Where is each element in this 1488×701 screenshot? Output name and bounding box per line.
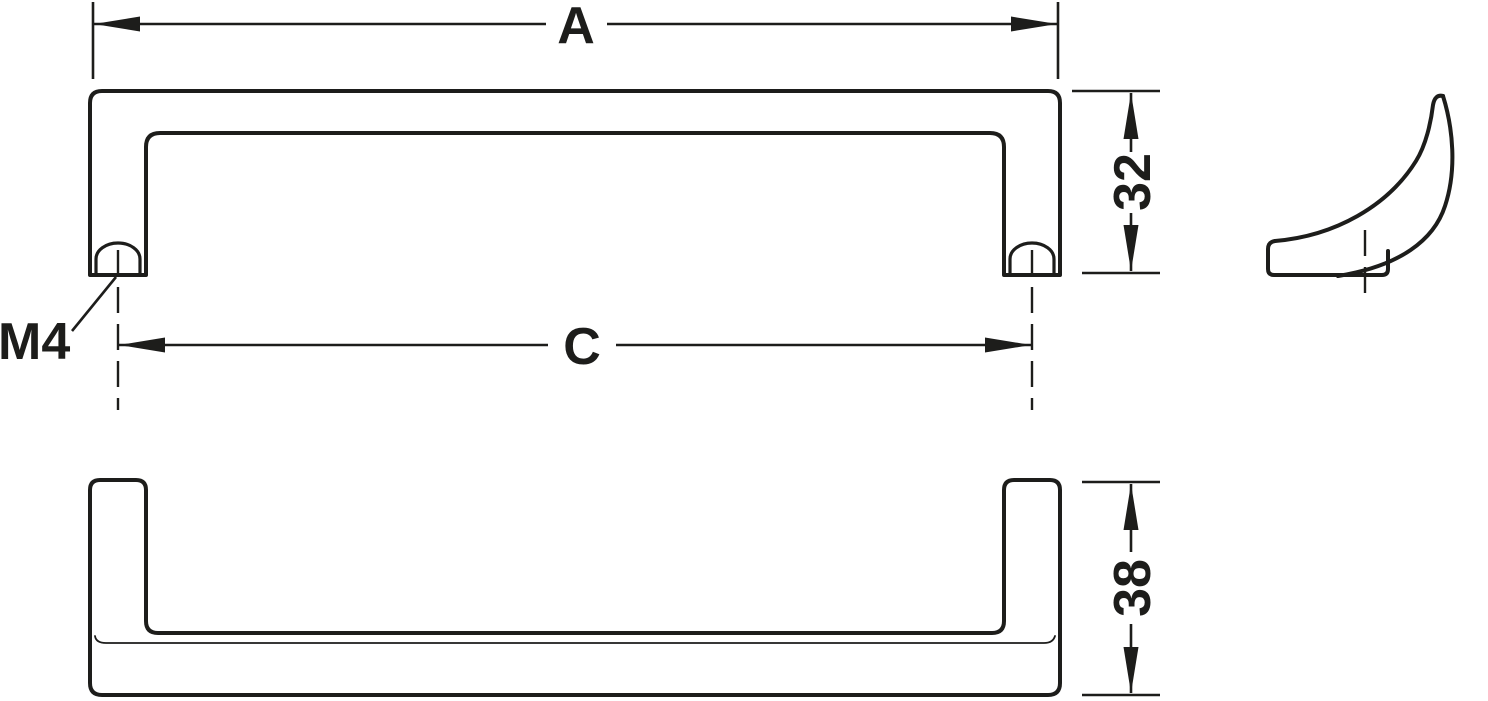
arrowhead-right-icon [985, 338, 1031, 353]
side-view [1268, 96, 1452, 293]
arrowhead-left-icon [119, 338, 165, 353]
plan-edge-line [95, 636, 1055, 643]
thread-label: M4 [0, 313, 70, 371]
side-concave-curve [1275, 96, 1443, 241]
dimension-a: A [93, 0, 1058, 79]
handle-front-outline [90, 91, 1060, 275]
technical-drawing-canvas: A M4 C [0, 0, 1488, 701]
dimension-32: 32 [1072, 91, 1162, 273]
arrowhead-right-icon [1011, 17, 1057, 32]
dimension-c: C [119, 318, 1031, 376]
arrowhead-up-icon [1124, 484, 1139, 530]
dimension-c-label: C [563, 318, 601, 376]
arrowhead-up-icon [1124, 93, 1139, 139]
dimension-38-label: 38 [1104, 559, 1162, 617]
dimension-a-label: A [557, 0, 595, 55]
arrowhead-down-icon [1124, 225, 1139, 271]
handle-plan-outline [90, 480, 1060, 695]
plan-view [90, 480, 1060, 695]
arrowhead-left-icon [94, 17, 140, 32]
dimension-32-label: 32 [1104, 153, 1162, 211]
dimension-38: 38 [1082, 482, 1162, 695]
handle-dimension-drawing: A M4 C [0, 0, 1488, 701]
leader-line [72, 277, 116, 331]
m4-annotation: M4 [0, 277, 116, 371]
arrowhead-down-icon [1124, 647, 1139, 693]
